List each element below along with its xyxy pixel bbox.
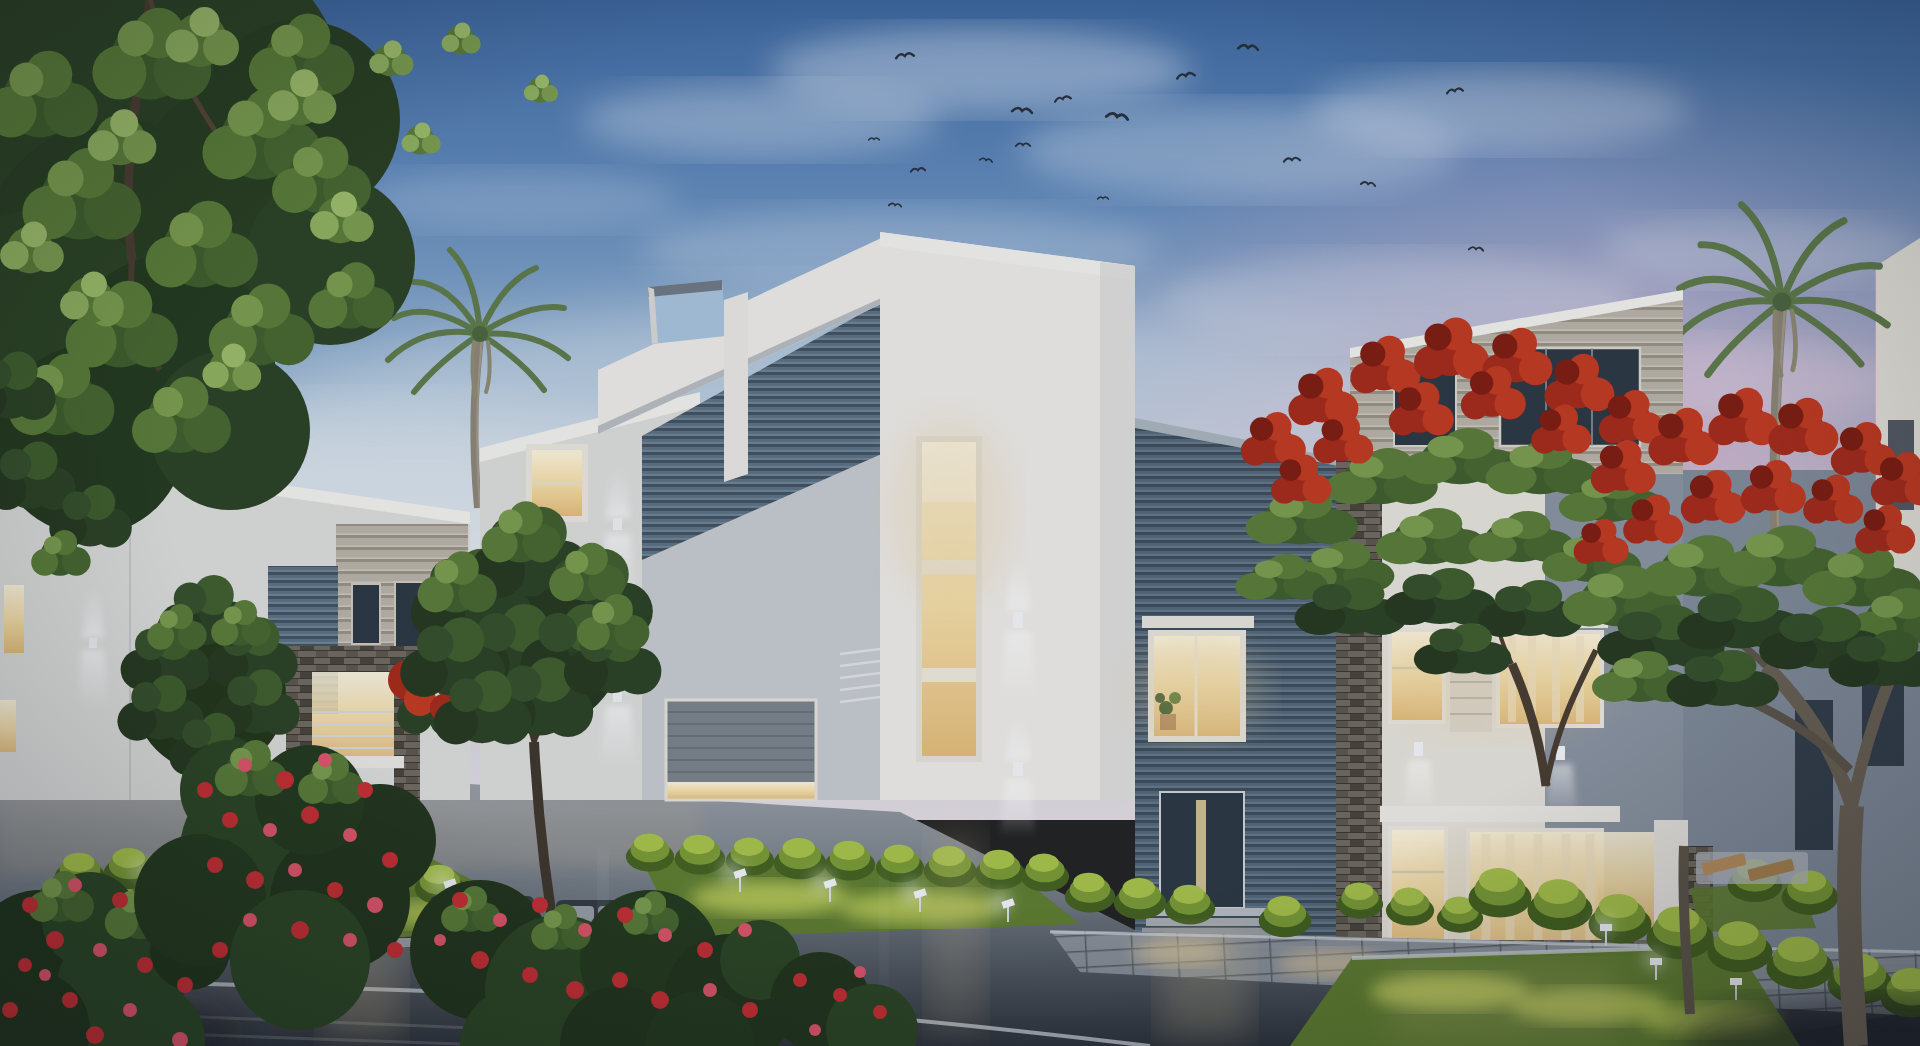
architectural-render — [0, 0, 1920, 1046]
vignette — [0, 0, 1920, 1046]
